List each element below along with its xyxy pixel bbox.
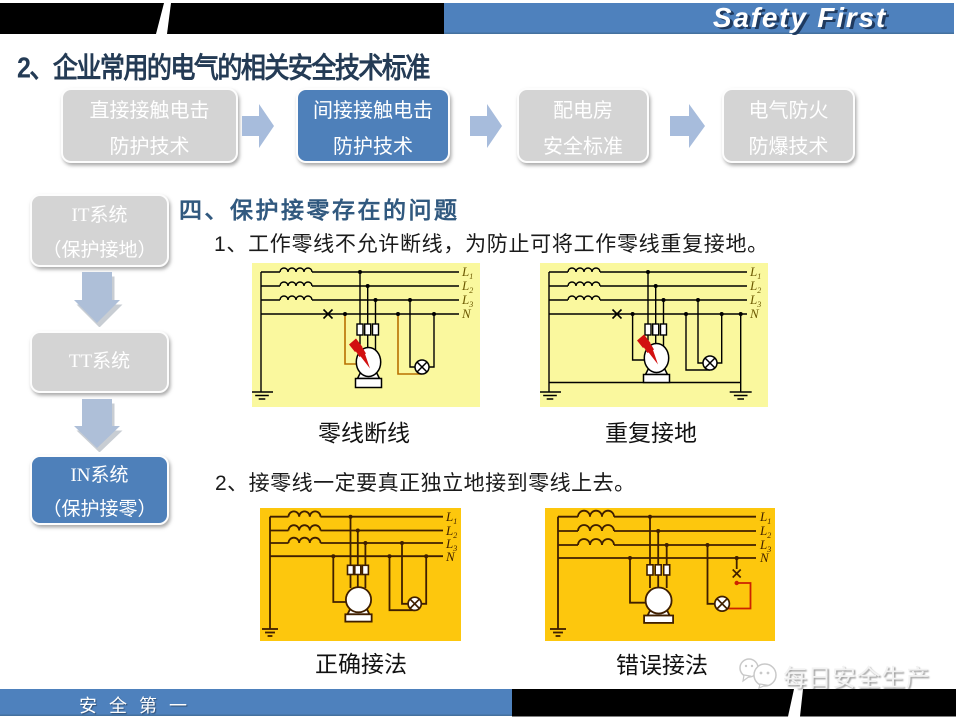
svg-text:N: N	[749, 306, 760, 321]
svg-text:N: N	[759, 550, 770, 565]
svg-text:N: N	[445, 549, 456, 564]
svg-text:N: N	[461, 306, 472, 321]
